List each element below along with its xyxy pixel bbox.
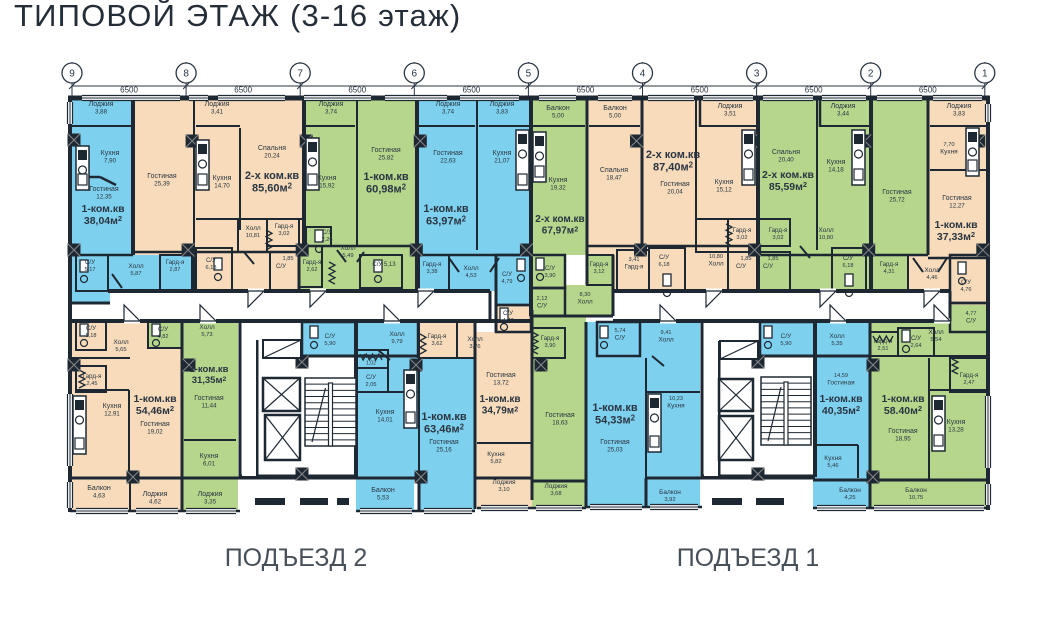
svg-text:2-х ком.кв: 2-х ком.кв — [245, 170, 300, 182]
svg-text:ПОДЪЕЗД 2: ПОДЪЕЗД 2 — [225, 544, 368, 572]
svg-text:4,63: 4,63 — [93, 492, 106, 499]
svg-text:1,02: 1,02 — [366, 360, 376, 366]
svg-text:Кухня: Кухня — [376, 409, 395, 416]
svg-text:63,46м2: 63,46м2 — [424, 423, 465, 436]
svg-text:Балкон: Балкон — [546, 105, 570, 112]
svg-text:5,82: 5,82 — [490, 459, 501, 465]
svg-text:3,83: 3,83 — [496, 108, 509, 115]
svg-text:60,98м2: 60,98м2 — [366, 183, 407, 196]
svg-text:3,92: 3,92 — [664, 497, 675, 503]
svg-text:Кухня: Кухня — [667, 403, 685, 410]
svg-text:5,17: 5,17 — [85, 267, 96, 273]
svg-text:20,40: 20,40 — [778, 156, 794, 163]
svg-text:6500: 6500 — [120, 86, 138, 95]
svg-text:5,65: 5,65 — [115, 347, 126, 353]
svg-text:Кухня: Кухня — [715, 179, 734, 186]
svg-text:2,12: 2,12 — [537, 296, 548, 302]
svg-text:Спальня: Спальня — [258, 145, 286, 152]
svg-text:Гостиная: Гостиная — [827, 380, 855, 387]
svg-text:Холл: Холл — [829, 333, 845, 340]
svg-text:21,07: 21,07 — [494, 157, 510, 164]
svg-text:3,90: 3,90 — [545, 343, 556, 349]
svg-text:С/У: С/У — [366, 375, 376, 381]
svg-text:Гард-я: Гард-я — [625, 263, 644, 270]
svg-text:3,35: 3,35 — [204, 498, 217, 505]
svg-text:Гостиная: Гостиная — [89, 186, 119, 193]
svg-text:4,77: 4,77 — [503, 318, 514, 324]
svg-text:4,76: 4,76 — [961, 287, 972, 293]
svg-text:2,51: 2,51 — [878, 346, 889, 352]
svg-text:5,90: 5,90 — [324, 341, 335, 347]
svg-text:63,97м2: 63,97м2 — [426, 215, 467, 228]
svg-text:ТИПОВОЙ ЭТАЖ (3-16 этаж): ТИПОВОЙ ЭТАЖ (3-16 этаж) — [14, 0, 461, 33]
svg-text:1: 1 — [982, 69, 988, 80]
svg-text:Холл: Холл — [463, 265, 479, 272]
svg-text:6,18: 6,18 — [206, 265, 217, 271]
svg-text:3,38: 3,38 — [427, 269, 438, 275]
svg-text:6500: 6500 — [919, 86, 937, 95]
svg-text:38,04м2: 38,04м2 — [84, 214, 122, 227]
svg-text:С/У: С/У — [966, 317, 976, 324]
svg-text:Холл: Холл — [128, 263, 144, 270]
svg-text:15,12: 15,12 — [716, 186, 732, 193]
svg-text:34,79м2: 34,79м2 — [482, 404, 518, 416]
svg-text:Гостиная: Гостиная — [660, 181, 690, 188]
svg-text:С/У: С/У — [736, 263, 746, 270]
svg-text:Гард-я: Гард-я — [541, 335, 560, 342]
svg-text:5,54: 5,54 — [930, 337, 942, 343]
svg-text:Гард-я: Гард-я — [960, 372, 979, 379]
svg-text:10,75: 10,75 — [909, 495, 924, 501]
svg-text:С/У: С/У — [322, 230, 332, 236]
svg-text:Гард-я: Гард-я — [83, 373, 102, 380]
svg-text:18,47: 18,47 — [606, 174, 622, 181]
svg-text:5,90: 5,90 — [780, 341, 791, 347]
svg-text:14,70: 14,70 — [214, 182, 230, 189]
svg-text:25,72: 25,72 — [889, 196, 905, 203]
svg-text:Спальня: Спальня — [600, 167, 628, 174]
svg-text:2,45: 2,45 — [87, 381, 98, 387]
svg-text:Холл: Холл — [658, 337, 674, 344]
svg-text:Спальня: Спальня — [772, 149, 800, 156]
svg-text:85,59м2: 85,59м2 — [769, 180, 807, 193]
svg-text:С/У: С/У — [781, 333, 793, 340]
svg-text:Холл: Холл — [113, 339, 129, 346]
svg-text:12,91: 12,91 — [104, 410, 120, 417]
svg-text:6: 6 — [412, 69, 418, 80]
svg-text:Балкон: Балкон — [905, 487, 927, 494]
svg-text:2,87: 2,87 — [170, 267, 181, 273]
svg-text:37,33м2: 37,33м2 — [937, 230, 975, 243]
svg-text:Кухня: Кухня — [947, 419, 966, 426]
svg-text:87,40м2: 87,40м2 — [653, 161, 694, 174]
svg-text:1-ком.кв: 1-ком.кв — [189, 364, 228, 375]
svg-text:54,33м2: 54,33м2 — [595, 414, 636, 427]
svg-text:22,63: 22,63 — [440, 157, 456, 164]
svg-text:2,05: 2,05 — [366, 382, 377, 388]
svg-text:5,46: 5,46 — [827, 463, 838, 469]
svg-text:5,49: 5,49 — [342, 253, 353, 259]
svg-text:12,27: 12,27 — [949, 202, 965, 209]
svg-text:С/У: С/У — [325, 333, 337, 340]
svg-text:Лоджия: Лоджия — [205, 101, 230, 108]
svg-text:6,18: 6,18 — [843, 263, 854, 269]
svg-text:19,02: 19,02 — [147, 428, 163, 435]
svg-text:С/У: С/У — [545, 265, 555, 272]
svg-text:Кухня: Кухня — [824, 455, 842, 462]
svg-text:Балкон: Балкон — [371, 487, 395, 494]
svg-text:25,03: 25,03 — [607, 446, 623, 453]
svg-text:3,74: 3,74 — [325, 108, 338, 115]
svg-text:1-ком.кв: 1-ком.кв — [592, 402, 637, 414]
svg-text:Холл: Холл — [340, 245, 356, 252]
svg-text:С/У: С/У — [158, 326, 168, 333]
svg-text:4,53: 4,53 — [465, 273, 476, 279]
svg-text:3,62: 3,62 — [432, 341, 443, 347]
svg-text:5,53: 5,53 — [377, 494, 390, 501]
svg-text:1-ком.кв: 1-ком.кв — [423, 203, 468, 215]
svg-text:5,00: 5,00 — [552, 112, 565, 119]
svg-text:Кухня: Кухня — [940, 149, 958, 156]
svg-text:Гостиная: Гостиная — [140, 421, 170, 428]
svg-text:Лоджия: Лоджия — [544, 483, 568, 490]
svg-text:1-ком.кв: 1-ком.кв — [819, 393, 863, 405]
svg-text:Гард-я: Гард-я — [166, 259, 185, 266]
svg-text:Гостиная: Гостиная — [486, 372, 516, 379]
svg-text:Гард-я: Гард-я — [880, 261, 899, 268]
svg-text:7,90: 7,90 — [104, 157, 117, 164]
svg-text:Гостиная: Гостиная — [888, 428, 918, 435]
svg-text:6500: 6500 — [462, 86, 480, 95]
svg-text:14,18: 14,18 — [828, 166, 844, 173]
svg-text:20,24: 20,24 — [264, 152, 280, 159]
svg-text:Гостиная: Гостиная — [882, 189, 912, 196]
svg-text:Холл: Холл — [818, 227, 834, 234]
svg-text:14,01: 14,01 — [377, 416, 393, 423]
svg-text:С/У: С/У — [502, 271, 512, 278]
svg-text:Кухня: Кухня — [549, 177, 568, 184]
svg-text:11,44: 11,44 — [201, 402, 217, 409]
svg-text:1,85: 1,85 — [768, 256, 779, 262]
svg-text:4,77: 4,77 — [966, 311, 977, 317]
svg-text:С/У: С/У — [659, 254, 669, 261]
svg-text:Кухня: Кухня — [487, 451, 505, 458]
svg-text:9,79: 9,79 — [391, 339, 402, 345]
svg-text:Гард-я: Гард-я — [590, 261, 609, 268]
svg-text:1-ком.кв: 1-ком.кв — [421, 411, 466, 423]
svg-text:10,81: 10,81 — [246, 233, 261, 239]
svg-text:4,25: 4,25 — [844, 495, 855, 501]
svg-text:7,70: 7,70 — [943, 142, 954, 148]
svg-text:1-ком.кв: 1-ком.кв — [934, 219, 978, 231]
svg-text:Кухня: Кухня — [200, 453, 219, 460]
svg-text:Гард-я: Гард-я — [303, 259, 322, 266]
svg-text:3,74: 3,74 — [442, 108, 455, 115]
svg-text:Балкон: Балкон — [839, 487, 861, 494]
svg-text:19,32: 19,32 — [550, 184, 566, 191]
svg-text:Холл: Холл — [924, 267, 940, 274]
svg-text:25,16: 25,16 — [436, 446, 452, 453]
svg-text:1-ком.кв: 1-ком.кв — [881, 393, 925, 405]
svg-text:6,18: 6,18 — [659, 262, 670, 268]
svg-text:3,51: 3,51 — [724, 110, 737, 117]
svg-text:С/У: С/У — [276, 263, 286, 270]
svg-text:6500: 6500 — [691, 86, 709, 95]
svg-text:15,92: 15,92 — [319, 182, 335, 189]
svg-text:3,76: 3,76 — [469, 344, 480, 350]
svg-text:4,31: 4,31 — [884, 269, 895, 275]
svg-text:13,28: 13,28 — [948, 426, 964, 433]
svg-text:5,74: 5,74 — [615, 328, 626, 334]
svg-text:Лоджия: Лоджия — [492, 479, 516, 486]
svg-text:Гостиная: Гостиная — [600, 439, 630, 446]
svg-text:3,02: 3,02 — [736, 235, 747, 241]
svg-text:5,87: 5,87 — [130, 271, 141, 277]
svg-text:6500: 6500 — [348, 86, 366, 95]
svg-text:4,79: 4,79 — [502, 279, 513, 285]
svg-text:Лоджия: Лоджия — [198, 491, 223, 498]
svg-text:С/У: С/У — [763, 263, 773, 270]
svg-text:С/У 5,13: С/У 5,13 — [372, 262, 396, 268]
svg-text:Лоджия: Лоджия — [436, 101, 461, 108]
svg-text:40,35м2: 40,35м2 — [822, 404, 860, 417]
svg-text:Кухня: Кухня — [493, 150, 512, 157]
svg-text:5,73: 5,73 — [201, 332, 212, 338]
svg-text:3,88: 3,88 — [95, 108, 108, 115]
svg-text:Лоджия: Лоджия — [490, 101, 515, 108]
svg-text:Кухня: Кухня — [318, 175, 337, 182]
svg-text:С/У: С/У — [911, 335, 921, 342]
svg-text:С/У: С/У — [843, 255, 853, 262]
svg-text:12,35: 12,35 — [96, 193, 112, 200]
svg-text:25,39: 25,39 — [154, 180, 170, 187]
svg-text:Кухня: Кухня — [827, 159, 846, 166]
svg-text:Гостиная: Гостиная — [371, 147, 401, 154]
svg-text:Холл: Холл — [389, 331, 405, 338]
svg-text:Гард-я: Гард-я — [733, 227, 752, 234]
svg-text:С/У: С/У — [503, 310, 513, 317]
svg-text:С/У: С/У — [537, 302, 547, 309]
svg-text:Гард-я: Гард-я — [769, 227, 788, 234]
svg-text:С/У: С/У — [86, 325, 96, 332]
svg-text:Гостиная: Гостиная — [942, 195, 972, 202]
svg-text:5: 5 — [526, 69, 532, 80]
svg-text:С/У: С/У — [961, 279, 971, 286]
svg-text:2,26: 2,26 — [322, 237, 333, 243]
svg-text:1-ком.кв: 1-ком.кв — [133, 393, 177, 405]
svg-text:5,00: 5,00 — [609, 112, 622, 119]
svg-text:1,85: 1,85 — [741, 256, 752, 262]
svg-text:С/У: С/У — [206, 257, 216, 264]
svg-text:4,46: 4,46 — [926, 275, 937, 281]
svg-text:3,44: 3,44 — [837, 110, 850, 117]
svg-text:7: 7 — [297, 69, 303, 80]
svg-text:Холл: Холл — [245, 225, 261, 232]
svg-text:Гостиная: Гостиная — [429, 439, 459, 446]
svg-text:5,35: 5,35 — [831, 341, 842, 347]
svg-text:Балкон: Балкон — [87, 485, 111, 492]
svg-text:Холл: Холл — [199, 324, 215, 331]
svg-text:Гард-я: Гард-я — [363, 354, 380, 360]
svg-text:10,80: 10,80 — [709, 254, 723, 260]
svg-text:Лоджия: Лоджия — [718, 103, 743, 110]
svg-text:2,47: 2,47 — [964, 380, 975, 386]
svg-text:Гард-я: Гард-я — [423, 261, 442, 268]
svg-text:Холл: Холл — [577, 299, 593, 306]
svg-text:20,04: 20,04 — [667, 188, 683, 195]
svg-text:3,90: 3,90 — [545, 273, 556, 279]
svg-text:Гард-я: Гард-я — [874, 338, 893, 345]
svg-text:10,23: 10,23 — [669, 396, 683, 402]
svg-text:2,64: 2,64 — [911, 343, 922, 349]
svg-text:Холл: Холл — [467, 336, 483, 343]
svg-text:6500: 6500 — [234, 86, 252, 95]
svg-text:4: 4 — [640, 69, 646, 80]
svg-text:2,62: 2,62 — [307, 267, 318, 273]
svg-text:Лоджия: Лоджия — [89, 101, 114, 108]
svg-text:Гостиная: Гостиная — [194, 395, 224, 402]
svg-text:2-х ком.кв: 2-х ком.кв — [762, 169, 814, 181]
svg-text:6,01: 6,01 — [203, 460, 216, 467]
svg-text:9: 9 — [69, 69, 75, 80]
svg-text:Лоджия: Лоджия — [143, 491, 168, 498]
svg-text:3,41: 3,41 — [629, 257, 640, 263]
svg-text:Холл: Холл — [928, 329, 944, 336]
svg-text:Лоджия: Лоджия — [831, 103, 856, 110]
svg-text:Кухня: Кухня — [103, 403, 122, 410]
svg-text:67,97м2: 67,97м2 — [542, 224, 578, 236]
svg-text:8: 8 — [183, 69, 189, 80]
svg-text:2-х ком.кв: 2-х ком.кв — [646, 149, 701, 161]
svg-text:3,83: 3,83 — [953, 110, 966, 117]
svg-text:8,30: 8,30 — [580, 292, 591, 298]
svg-text:3,12: 3,12 — [594, 269, 605, 275]
svg-text:14,59: 14,59 — [834, 373, 848, 379]
svg-text:31,35м2: 31,35м2 — [192, 375, 227, 386]
svg-text:С/У: С/У — [85, 259, 95, 266]
svg-text:18,95: 18,95 — [895, 435, 911, 442]
svg-text:Лоджия: Лоджия — [947, 103, 972, 110]
svg-text:3,41: 3,41 — [211, 108, 224, 115]
svg-text:1-ком.кв: 1-ком.кв — [363, 171, 408, 183]
svg-text:1-ком.кв: 1-ком.кв — [81, 203, 125, 215]
svg-text:25,82: 25,82 — [378, 154, 394, 161]
svg-text:6500: 6500 — [577, 86, 595, 95]
svg-text:18,63: 18,63 — [552, 419, 568, 426]
svg-text:ПОДЪЕЗД 1: ПОДЪЕЗД 1 — [677, 544, 820, 572]
svg-text:С/У: С/У — [615, 335, 627, 342]
svg-text:3: 3 — [754, 69, 760, 80]
svg-text:Балкон: Балкон — [603, 105, 627, 112]
svg-text:58.40м2: 58.40м2 — [884, 404, 922, 417]
svg-text:4,62: 4,62 — [149, 498, 162, 505]
svg-text:Кухня: Кухня — [101, 150, 120, 157]
svg-text:9,41: 9,41 — [661, 330, 672, 336]
svg-text:Балкон: Балкон — [659, 489, 681, 496]
svg-text:3,02: 3,02 — [772, 235, 783, 241]
svg-text:Лоджия: Лоджия — [319, 101, 344, 108]
svg-text:13,72: 13,72 — [493, 379, 509, 386]
svg-text:Гостиная: Гостиная — [147, 173, 177, 180]
svg-text:Холл: Холл — [708, 261, 724, 268]
svg-text:Гостиная: Гостиная — [433, 150, 463, 157]
svg-text:3,10: 3,10 — [498, 487, 509, 493]
svg-text:4,82: 4,82 — [158, 334, 169, 340]
svg-text:54,46м2: 54,46м2 — [136, 404, 174, 417]
svg-text:5,18: 5,18 — [86, 333, 97, 339]
svg-text:3,68: 3,68 — [550, 491, 561, 497]
svg-text:Гард-я: Гард-я — [428, 333, 447, 340]
svg-text:Гард-я: Гард-я — [275, 223, 294, 230]
svg-text:3,02: 3,02 — [278, 231, 289, 237]
svg-text:85,60м2: 85,60м2 — [252, 182, 293, 195]
svg-text:2: 2 — [868, 69, 874, 80]
svg-text:Гостиная: Гостиная — [545, 412, 575, 419]
svg-text:Кухня: Кухня — [213, 175, 232, 182]
svg-text:10,80: 10,80 — [819, 235, 834, 241]
svg-text:1,85: 1,85 — [283, 256, 294, 262]
svg-text:6500: 6500 — [805, 86, 823, 95]
